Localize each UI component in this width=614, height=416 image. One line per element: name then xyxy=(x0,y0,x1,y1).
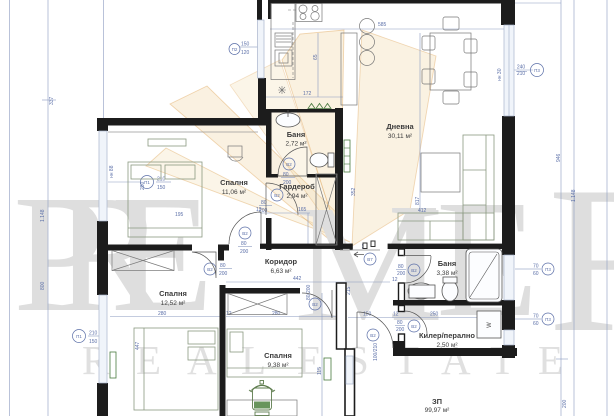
svg-text:150: 150 xyxy=(89,339,98,345)
svg-text:442: 442 xyxy=(293,276,302,282)
svg-text:817: 817 xyxy=(415,196,421,205)
svg-text:Спалня: Спалня xyxy=(220,178,248,187)
svg-text:210: 210 xyxy=(517,71,526,77)
svg-text:200: 200 xyxy=(397,271,406,277)
svg-text:585: 585 xyxy=(378,22,387,28)
svg-text:W: W xyxy=(487,322,493,328)
svg-text:3,38 м²: 3,38 м² xyxy=(436,270,458,277)
svg-text:В2: В2 xyxy=(286,162,292,167)
svg-text:80: 80 xyxy=(397,320,403,326)
svg-text:200: 200 xyxy=(219,271,228,277)
svg-text:80/200: 80/200 xyxy=(306,284,312,300)
svg-text:2,50 м²: 2,50 м² xyxy=(436,342,458,349)
svg-text:В2: В2 xyxy=(312,302,318,307)
svg-text:6,63 м²: 6,63 м² xyxy=(270,268,292,275)
svg-text:172: 172 xyxy=(303,91,312,97)
svg-text:Спалня: Спалня xyxy=(264,351,292,360)
svg-text:В2: В2 xyxy=(242,231,248,236)
svg-text:Дневна: Дневна xyxy=(386,122,414,131)
svg-text:200: 200 xyxy=(562,399,568,408)
svg-text:9,38 м²: 9,38 м² xyxy=(267,362,289,369)
svg-text:150: 150 xyxy=(241,42,250,48)
svg-text:П3: П3 xyxy=(534,68,540,73)
svg-text:280: 280 xyxy=(158,311,167,317)
svg-text:нн 88: нн 88 xyxy=(109,165,115,178)
svg-text:В2: В2 xyxy=(274,193,280,198)
svg-text:11,06 м²: 11,06 м² xyxy=(222,189,247,196)
svg-text:800: 800 xyxy=(40,281,46,290)
svg-text:240: 240 xyxy=(517,65,526,71)
svg-text:200: 200 xyxy=(240,249,249,255)
svg-text:80: 80 xyxy=(220,263,226,269)
svg-text:В2: В2 xyxy=(411,268,417,273)
svg-text:2,94 м²: 2,94 м² xyxy=(286,193,308,200)
svg-text:ЗП: ЗП xyxy=(432,397,442,406)
svg-text:150: 150 xyxy=(157,185,166,191)
svg-text:12: 12 xyxy=(392,277,398,283)
svg-text:100/210: 100/210 xyxy=(373,343,379,361)
svg-text:115: 115 xyxy=(317,367,323,375)
svg-text:60: 60 xyxy=(533,321,539,327)
svg-text:165: 165 xyxy=(298,207,307,213)
svg-text:946: 946 xyxy=(556,153,562,162)
svg-text:П3: П3 xyxy=(545,317,551,322)
svg-text:70: 70 xyxy=(533,314,539,320)
svg-text:2,72 м²: 2,72 м² xyxy=(285,141,307,148)
svg-text:П1: П1 xyxy=(144,180,150,185)
svg-text:Баня: Баня xyxy=(287,130,305,139)
svg-text:337: 337 xyxy=(49,96,55,105)
svg-text:210: 210 xyxy=(89,331,98,337)
svg-text:447: 447 xyxy=(135,341,141,350)
svg-text:1.148: 1.148 xyxy=(40,209,46,222)
svg-text:99,97 м²: 99,97 м² xyxy=(425,407,451,414)
svg-text:E: E xyxy=(538,337,563,383)
svg-text:352: 352 xyxy=(351,187,357,196)
svg-text:250: 250 xyxy=(430,312,439,318)
svg-text:12: 12 xyxy=(393,312,399,318)
svg-text:нн 30: нн 30 xyxy=(497,68,503,81)
svg-text:L: L xyxy=(241,337,266,383)
svg-text:П1: П1 xyxy=(76,334,82,339)
svg-text:E: E xyxy=(297,337,322,383)
svg-text:60: 60 xyxy=(533,271,539,277)
svg-text:70: 70 xyxy=(533,264,539,270)
svg-text:120: 120 xyxy=(241,50,250,56)
svg-text:195: 195 xyxy=(175,212,184,218)
svg-text:200: 200 xyxy=(396,327,405,333)
svg-text:В2: В2 xyxy=(370,333,376,338)
svg-text:215: 215 xyxy=(346,286,352,295)
svg-text:1.148: 1.148 xyxy=(571,189,577,202)
svg-text:В7: В7 xyxy=(367,257,373,262)
svg-text:65: 65 xyxy=(313,54,319,60)
svg-text:В2: В2 xyxy=(207,267,213,272)
svg-text:Коридор: Коридор xyxy=(265,257,298,266)
svg-text:12,52 м²: 12,52 м² xyxy=(161,300,187,307)
svg-text:Килер/перално: Килер/перално xyxy=(419,331,475,340)
svg-text:Баня: Баня xyxy=(438,259,456,268)
svg-text:80: 80 xyxy=(283,172,289,178)
svg-text:Спалня: Спалня xyxy=(159,289,187,298)
svg-text:80: 80 xyxy=(398,264,404,270)
svg-text:Гардероб: Гардероб xyxy=(279,182,315,191)
svg-text:П2: П2 xyxy=(232,47,238,52)
svg-text:П3: П3 xyxy=(545,267,551,272)
svg-text:80: 80 xyxy=(241,241,247,247)
svg-text:30,11 м²: 30,11 м² xyxy=(388,133,413,140)
svg-text:В2: В2 xyxy=(411,324,417,329)
